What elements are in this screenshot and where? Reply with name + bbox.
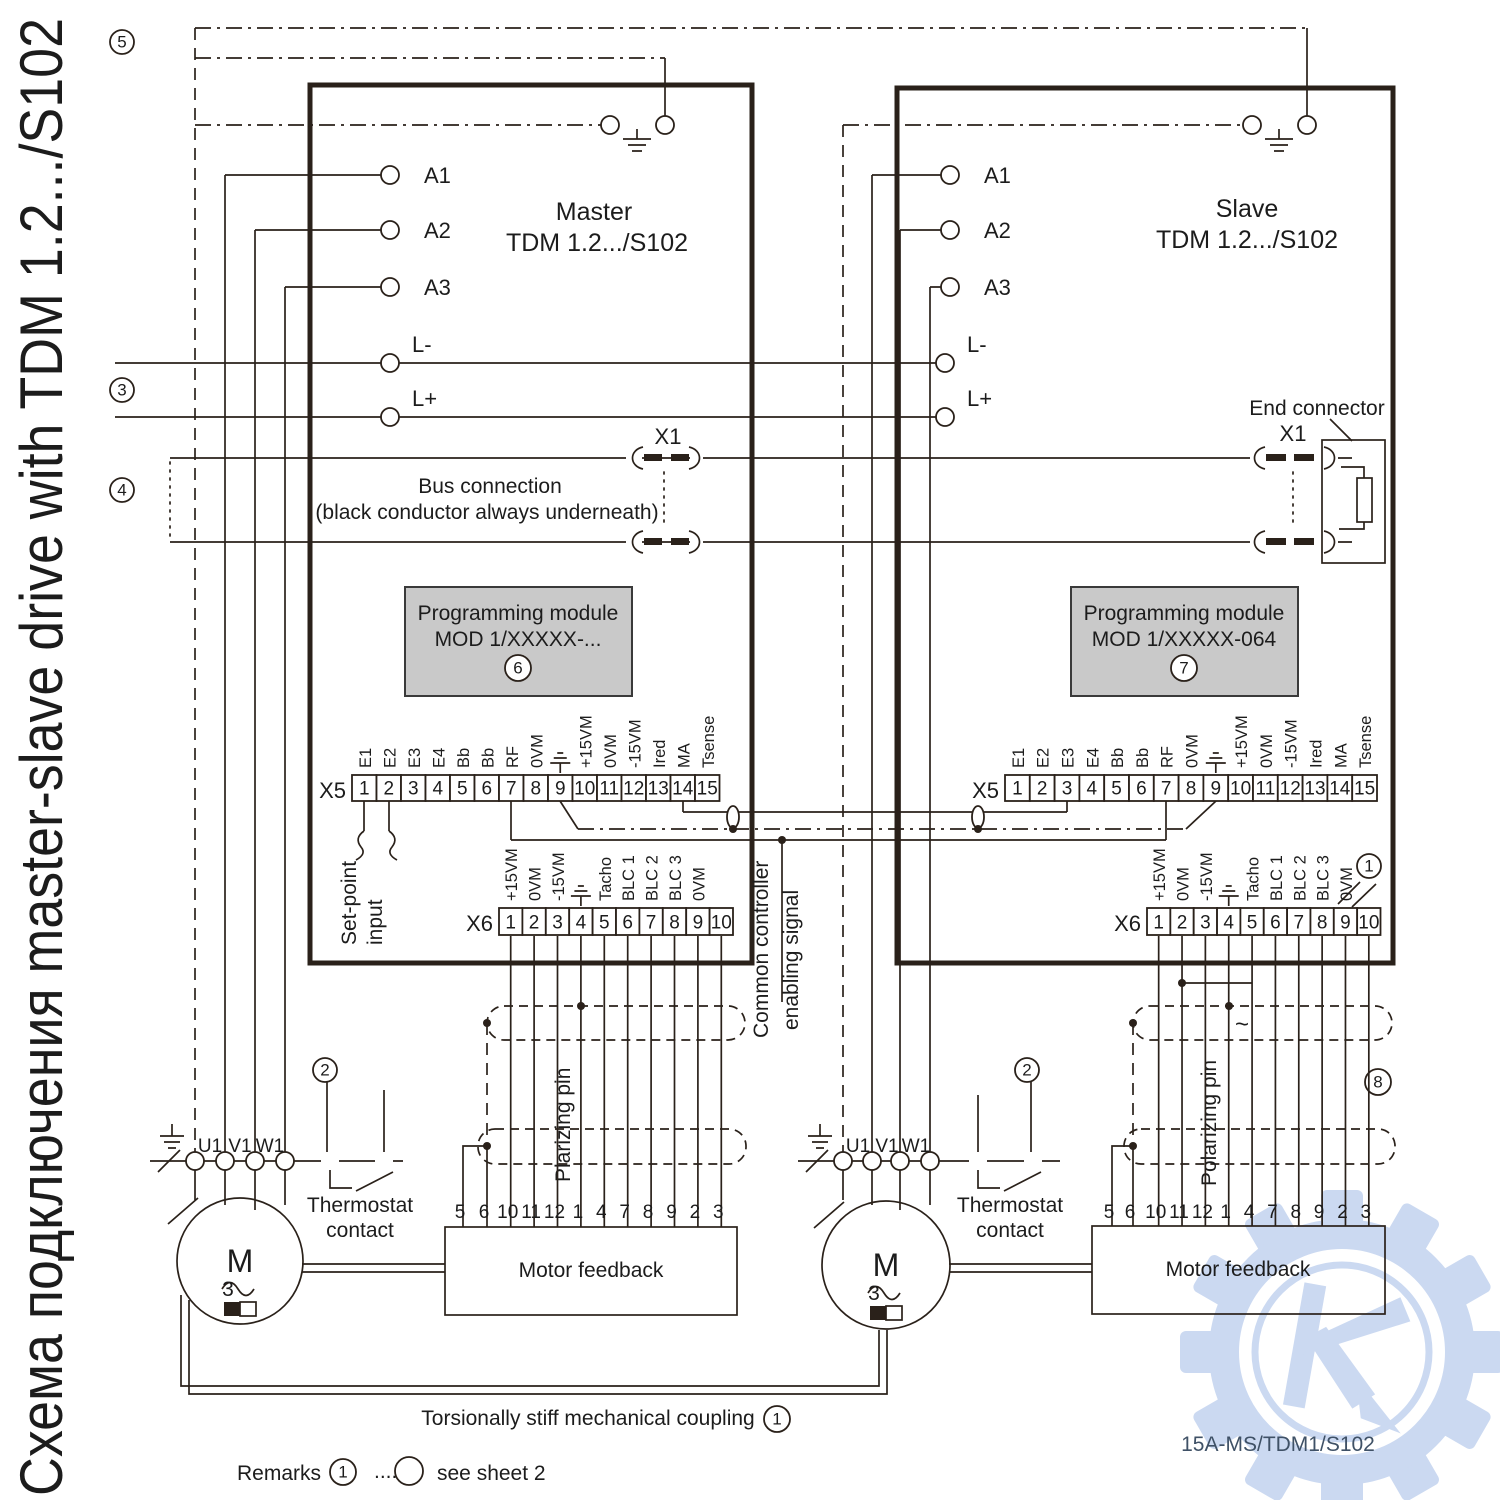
terminal-number: 4 [1087, 779, 1098, 800]
terminal-signal-label: 0VM [1258, 734, 1276, 768]
terminal-number: 9 [555, 779, 566, 800]
terminal-signal-label: E4 [1084, 748, 1102, 768]
junction-dots [483, 825, 1233, 1150]
x6-strip-label: X6 [1114, 911, 1141, 936]
terminal-signal-label: E2 [1035, 748, 1053, 768]
terminal-signal-label: Bb [1134, 748, 1152, 768]
feedback-pin-number: 6 [1125, 1202, 1136, 1223]
ref-empty [395, 1457, 423, 1485]
feedback-pin-number: 3 [713, 1202, 724, 1223]
master-name: Master [556, 198, 632, 226]
terminal-number: 13 [1304, 779, 1325, 800]
ground-icon [806, 1124, 832, 1172]
terminal-number: 5 [1111, 779, 1122, 800]
ground-icon [1206, 753, 1226, 773]
wire-loop-icon [727, 806, 739, 828]
remarks-note: see sheet 2 [437, 1462, 546, 1485]
terminal-number: 3 [1200, 913, 1211, 934]
terminal-number: 6 [1270, 913, 1281, 934]
terminal-number: 3 [408, 779, 419, 800]
x6-strip-label: X6 [466, 911, 493, 936]
terminal-label-a1: A1 [424, 163, 451, 188]
svg-text:7: 7 [1179, 659, 1188, 678]
terminal-signal-label: RF [504, 746, 522, 768]
terminal-signal-label: 0VM [1184, 734, 1202, 768]
terminal-signal-label: E4 [430, 748, 448, 768]
svg-text:5: 5 [117, 33, 126, 52]
terminal-number: 12 [623, 779, 644, 800]
slave-drive-box [897, 88, 1393, 963]
bus-connector-icon [633, 447, 700, 553]
feedback-pin-number: 5 [455, 1202, 466, 1223]
x5-strip-label: X5 [972, 778, 999, 803]
ground-icon [1243, 116, 1316, 151]
terminal-signal-label: Tsense [1357, 716, 1375, 768]
terminal-signal-label: BLC 2 [1291, 855, 1309, 901]
coupling-label: Torsionally stiff mechanical coupling [421, 1407, 754, 1430]
terminal-number: 1 [359, 779, 370, 800]
terminal-signal-label: Ired [1308, 740, 1326, 768]
terminal-number: 8 [669, 913, 680, 934]
motor-phase-label: 3 [868, 1282, 880, 1305]
terminal-number: 6 [1136, 779, 1147, 800]
terminal-signal-label: Bb [1109, 748, 1127, 768]
motor-terminal-label: V1 [875, 1136, 898, 1157]
terminating-resistor-icon [1357, 478, 1372, 522]
feedback-pin-number: 11 [521, 1202, 541, 1223]
motor-terminal-label: W1 [902, 1136, 931, 1157]
feedback-pin-number: 1 [573, 1202, 584, 1223]
terminal-label-a3: A3 [984, 275, 1011, 300]
x1-label: X1 [1280, 421, 1307, 446]
terminal-signal-label: +15VM [1233, 715, 1251, 768]
terminal-label-a1: A1 [984, 163, 1011, 188]
terminal-signal-label: +15VM [1151, 848, 1169, 901]
feedback-pin-number: 12 [1192, 1202, 1213, 1223]
feedback-pin-number: 3 [1361, 1202, 1372, 1223]
terminal-number: 12 [1280, 779, 1301, 800]
terminal-number: 3 [1062, 779, 1073, 800]
feedback-pin-number: 7 [1267, 1202, 1278, 1223]
feedback-pin-number: 2 [1337, 1202, 1348, 1223]
terminal-number: 5 [599, 913, 610, 934]
terminal-label-lplus: L+ [967, 386, 992, 411]
terminal-number: 15 [1354, 779, 1375, 800]
terminal-signal-label: Bb [455, 748, 473, 768]
motor-terminal-label: U1 [198, 1136, 222, 1157]
terminal-number: 2 [1037, 779, 1048, 800]
tacho-wave-mark: ~ [1235, 1011, 1249, 1038]
common-enable-label: enabling signal [780, 890, 803, 1030]
svg-text:1: 1 [1364, 857, 1373, 876]
motor-phase-label: 3 [222, 1278, 234, 1301]
bus-connection-note: (black conductor always underneath) [315, 501, 658, 524]
svg-text:8: 8 [1373, 1073, 1382, 1092]
terminal-number: 1 [1153, 913, 1164, 934]
terminal-label-a2: A2 [984, 218, 1011, 243]
terminal-number: 8 [1317, 913, 1328, 934]
ground-icon [158, 1124, 184, 1172]
feedback-pin-number: 8 [643, 1202, 654, 1223]
terminal-number: 7 [1161, 779, 1172, 800]
terminal-number: 7 [646, 913, 657, 934]
svg-text:3: 3 [117, 381, 126, 400]
polarizing-pin-label: Polarizing pin [1198, 1060, 1221, 1186]
terminal-signal-label: E1 [1010, 748, 1028, 768]
master-drive-box [310, 85, 752, 963]
terminal-number: 4 [432, 779, 443, 800]
feedback-pin-number: 7 [619, 1202, 630, 1223]
thermostat-label: contact [326, 1219, 394, 1242]
ref-1: 1 [764, 1406, 790, 1432]
terminal-number: 11 [599, 779, 619, 800]
feedback-pin-number: 5 [1104, 1202, 1115, 1223]
terminal-signal-label: 0VM [527, 867, 545, 901]
motor-m-label: M [873, 1247, 900, 1283]
x1-label: X1 [655, 424, 682, 449]
ref-2: 2 [1015, 1058, 1039, 1082]
end-connector [1322, 419, 1385, 563]
slave-model: TDM 1.2.../S102 [1156, 226, 1338, 254]
motor-feedback-label: Motor feedback [1166, 1258, 1311, 1281]
terminal-number: 2 [1177, 913, 1188, 934]
terminal-signal-label: E3 [406, 748, 424, 768]
x5-strip-label: X5 [319, 778, 346, 803]
motor-plate-icon [870, 1306, 886, 1320]
motor-m-label: M [227, 1243, 254, 1279]
terminal-signal-label: -15VM [1198, 852, 1216, 901]
terminal-signal-label: BLC 3 [1315, 855, 1333, 901]
motor-plate-icon [224, 1302, 240, 1316]
terminal-label-a2: A2 [424, 218, 451, 243]
terminal-label-lplus: L+ [412, 386, 437, 411]
terminal-number: 10 [1230, 779, 1251, 800]
module-model: MOD 1/XXXXX-064 [1092, 628, 1277, 651]
terminal-number: 5 [457, 779, 468, 800]
terminal-signal-label: 0VM [528, 734, 546, 768]
terminal-number: 15 [697, 779, 718, 800]
document-number: 15A-MS/TDM1/S102 [1181, 1433, 1375, 1456]
ref-1: 1 [330, 1459, 356, 1485]
slave-name: Slave [1216, 195, 1279, 223]
thermostat-label: Thermostat [307, 1194, 413, 1217]
terminal-signal-label: BLC 3 [667, 855, 685, 901]
terminal-number: 2 [529, 913, 540, 934]
ref-6: 6 [505, 655, 531, 681]
feedback-pin-number: 10 [1145, 1202, 1166, 1223]
terminal-number: 14 [1329, 779, 1351, 800]
feedback-pin-number: 2 [690, 1202, 701, 1223]
feedback-pin-number: 4 [596, 1202, 607, 1223]
terminal-signal-label: 0VM [602, 734, 620, 768]
terminal-signal-label: -15VM [626, 719, 644, 768]
motor-terminal-label: V1 [228, 1136, 251, 1157]
ref-5: 5 [110, 30, 134, 54]
setpoint-hook-icon [389, 831, 397, 860]
ground-icon [550, 753, 570, 773]
svg-text:1: 1 [338, 1463, 347, 1482]
polarizing-pin-label: Plarizing pin [552, 1068, 575, 1182]
terminal-signal-label: +15VM [503, 848, 521, 901]
terminal-number: 10 [574, 779, 595, 800]
cable-shield-icon [478, 1006, 1395, 1164]
terminal-signal-label: -15VM [550, 852, 568, 901]
motor-feedback-label: Motor feedback [519, 1259, 664, 1282]
module-label: Programming module [1084, 602, 1285, 625]
ref-7: 7 [1171, 655, 1197, 681]
terminal-number: 10 [1358, 913, 1379, 934]
ref-4: 4 [110, 478, 134, 502]
bus-connection-label: Bus connection [418, 475, 562, 498]
feedback-pin-number: 9 [1314, 1202, 1325, 1223]
svg-text:4: 4 [117, 481, 126, 500]
terminal-number: 14 [672, 779, 694, 800]
wire-loop-icon [972, 806, 984, 828]
ground-icon [1219, 886, 1239, 906]
wiring-lines [115, 28, 1307, 1394]
terminal-number: 3 [552, 913, 563, 934]
terminal-number: 5 [1247, 913, 1258, 934]
feedback-pin-number: 1 [1220, 1202, 1231, 1223]
terminal-signal-label: Tsense [700, 716, 718, 768]
svg-text:2: 2 [1022, 1061, 1031, 1080]
feedback-pin-number: 9 [666, 1202, 677, 1223]
feedback-pin-number: 6 [479, 1202, 490, 1223]
terminal-number: 7 [506, 779, 517, 800]
diagram-canvas: Схема подключения master-slave drive wit… [0, 0, 1500, 1500]
thermostat-label: Thermostat [957, 1194, 1063, 1217]
terminal-number: 11 [1256, 779, 1276, 800]
terminal-signal-label: BLC 1 [620, 855, 638, 901]
page-title: Схема подключения master-slave drive wit… [8, 18, 75, 1496]
terminal-signal-label: Tacho [597, 857, 615, 901]
module-label: Programming module [418, 602, 619, 625]
ground-icon [571, 886, 591, 906]
setpoint-hook-icon [356, 831, 364, 860]
terminal-signal-label: BLC 2 [644, 855, 662, 901]
ref-1: 1 [1357, 854, 1381, 878]
terminal-signal-label: E1 [357, 748, 375, 768]
terminal-number: 7 [1293, 913, 1304, 934]
terminal-number: 4 [1223, 913, 1234, 934]
feedback-pin-number: 11 [1169, 1202, 1189, 1223]
terminal-number: 13 [648, 779, 669, 800]
terminal-signal-label: RF [1159, 746, 1177, 768]
end-connector-label: End connector [1249, 397, 1384, 420]
thermostat-label: contact [976, 1219, 1044, 1242]
terminal-number: 8 [530, 779, 541, 800]
terminal-signal-label: BLC 1 [1268, 855, 1286, 901]
ref-2: 2 [313, 1058, 337, 1082]
feedback-pin-number: 12 [544, 1202, 565, 1223]
terminal-label-lminus: L- [967, 332, 987, 357]
terminal-signal-label: 0VM [690, 867, 708, 901]
remarks-label: Remarks [237, 1462, 321, 1485]
terminal-signal-label: E2 [381, 748, 399, 768]
terminal-number: 2 [383, 779, 394, 800]
terminal-signal-label: MA [1332, 743, 1350, 768]
terminal-number: 6 [481, 779, 492, 800]
terminal-signal-label: Bb [479, 748, 497, 768]
setpoint-label: Set-point [338, 861, 361, 945]
feedback-pin-number: 4 [1244, 1202, 1255, 1223]
svg-text:6: 6 [513, 659, 522, 678]
setpoint-label: input [364, 899, 387, 945]
terminal-signal-label: +15VM [577, 715, 595, 768]
svg-text:1: 1 [772, 1410, 781, 1429]
wiring-diagram-page: Схема подключения master-slave drive wit… [0, 0, 1500, 1500]
common-enable-label: Common controller [750, 861, 773, 1038]
terminal-number: 6 [622, 913, 633, 934]
master-model: TDM 1.2.../S102 [506, 229, 688, 257]
terminal-number: 9 [693, 913, 704, 934]
terminal-number: 1 [505, 913, 516, 934]
feedback-pin-number: 8 [1291, 1202, 1302, 1223]
terminal-signal-label: Ired [651, 740, 669, 768]
remarks-dots: .... [374, 1460, 397, 1483]
terminal-number: 9 [1340, 913, 1351, 934]
terminal-signal-label: E3 [1060, 748, 1078, 768]
module-model: MOD 1/XXXXX-... [435, 628, 602, 651]
terminal-signal-label: 0VM [1338, 867, 1356, 901]
terminal-signal-label: -15VM [1283, 719, 1301, 768]
motor-terminal-label: W1 [256, 1136, 285, 1157]
terminal-label-a3: A3 [424, 275, 451, 300]
terminal-signal-label: Tacho [1245, 857, 1263, 901]
terminal-number: 4 [576, 913, 587, 934]
feedback-pin-number: 10 [497, 1202, 518, 1223]
terminal-signal-label: 0VM [1175, 867, 1193, 901]
terminal-number: 9 [1211, 779, 1222, 800]
terminal-signal-label: MA [675, 743, 693, 768]
terminal-number: 8 [1186, 779, 1197, 800]
motor-terminal-label: U1 [846, 1136, 870, 1157]
terminal-number: 1 [1012, 779, 1023, 800]
ground-icon [601, 116, 674, 151]
terminal-number: 10 [711, 913, 732, 934]
ref-3: 3 [110, 378, 134, 402]
terminal-label-lminus: L- [412, 332, 432, 357]
labels: Схема подключения master-slave drive wit… [8, 18, 1385, 1496]
svg-text:2: 2 [320, 1061, 329, 1080]
